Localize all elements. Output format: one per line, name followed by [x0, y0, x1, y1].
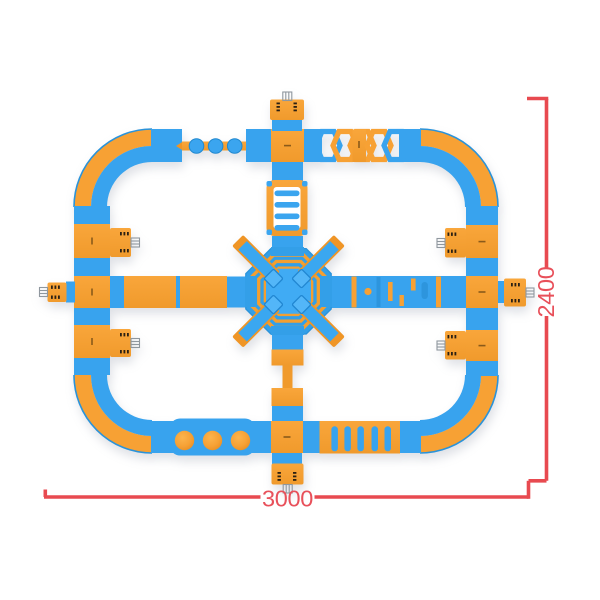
svg-text:2400: 2400	[533, 266, 559, 317]
svg-text:3000: 3000	[262, 486, 313, 512]
